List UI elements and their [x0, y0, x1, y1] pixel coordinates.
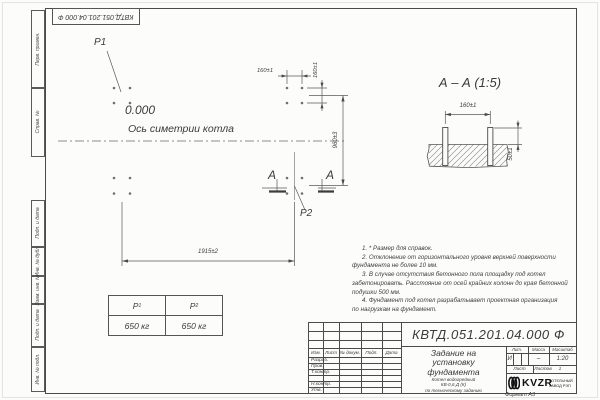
dim-1915: 1915±2 [198, 249, 218, 255]
load-label-p2: Р2 [300, 209, 312, 220]
tb-row-utv: Утв. [311, 388, 322, 393]
load-table-value-p1: 650 кг [108, 315, 166, 336]
tb-sheets-label: Листов [534, 367, 551, 372]
logo-caption-line2: ЗАВОД РЭП [549, 384, 571, 389]
section-dimension-lines [445, 111, 522, 152]
technical-notes: 1. * Размер для справок. 2. Отклонение о… [352, 245, 578, 315]
axis-of-symmetry-label: Ось симетрии котла [128, 124, 234, 135]
tb-title-line1: Задание на [431, 348, 476, 358]
tb-title-line2: установку [432, 357, 474, 367]
concrete-hatching [429, 145, 507, 167]
level-mark: 0.000 [125, 104, 155, 117]
section-dim-50: 50±1 [508, 147, 514, 160]
kvzr-logo-text: KVZR [522, 377, 553, 389]
section-dim-160: 160±1 [460, 103, 477, 109]
load-table: Р1 Р2 650 кг 650 кг [108, 295, 223, 335]
section-letter-left: А [268, 169, 276, 182]
tb-scale-value: 1:20 [557, 356, 569, 362]
tb-row-tkontr: Т.контр. [311, 370, 330, 375]
tb-mass-header: Масса [532, 347, 545, 352]
p2-subscript: 2 [195, 303, 198, 309]
section-view-title: А – А (1:5) [439, 76, 501, 90]
tb-mass-value: – [537, 356, 540, 362]
note-line: 1. * Размер для справок. [352, 245, 578, 254]
tb-lit-value: И [507, 356, 511, 362]
tb-scale-header: Масштаб [552, 347, 573, 352]
note-line: 3. В случае отсутствия бетонного пола пл… [352, 271, 578, 280]
tb-row-razrab: Разраб. [311, 358, 328, 363]
dim-160-top: 160±1 [257, 68, 273, 74]
note-line: забетонировать. Расстояние от осей крайн… [352, 280, 578, 289]
dim-960: 960±3 [333, 132, 339, 149]
tb-subtitle-line1: Котел водогрейный [432, 377, 476, 382]
tb-row-nkontr: Н.контр. [311, 382, 331, 387]
note-line: 4. Фундамент под котел разрабатывает про… [352, 297, 578, 306]
tb-header-podp: Подп. [365, 350, 377, 355]
load-table-header-p2: Р2 [165, 295, 223, 316]
section-anchor-bolts [443, 128, 493, 166]
note-line: фундамента не более 10 мм. [352, 262, 578, 271]
note-line: по нагрузкам на фундамент. [352, 306, 578, 315]
format-label: Формат А3 [505, 393, 535, 399]
dim-160-column: 160±1 [313, 62, 319, 78]
tb-sheet-label: Лист [513, 367, 525, 372]
tb-header-izm: Изм. [311, 350, 321, 355]
section-letter-right: А [326, 169, 334, 182]
tb-lit-header: Лит. [512, 347, 522, 352]
tb-header-list: Лист [325, 350, 337, 355]
kvzr-logo-icon [508, 376, 520, 390]
plan-dimension-lines [122, 70, 348, 266]
tb-header-dokum: № докум. [340, 350, 360, 355]
tb-subtitle-line2: КВ-0,6 Д (К) [441, 382, 466, 387]
title-block: КВТД.051.201.04.000 Ф Изм. Лист № докум.… [308, 322, 577, 394]
tb-title-line3: фундамента [427, 367, 479, 377]
load-table-header-p1: Р1 [108, 295, 166, 316]
tb-subtitle-line3: по техническому заданию [425, 388, 482, 393]
p1-subscript: 1 [138, 303, 141, 309]
tb-header-data: Дата [385, 350, 397, 355]
load-label-p1: Р1 [94, 38, 106, 49]
drawing-sheet: КВТД.051.201.04.000 Ф Перв. примен. Спра… [0, 0, 600, 400]
load-table-value-p2: 650 кг [165, 315, 223, 336]
title-block-designation: КВТД.051.201.04.000 Ф [412, 327, 565, 342]
note-line: подушки 500 мм. [352, 289, 578, 298]
note-line: 2. Отклонение от горизонтального уровня … [352, 254, 578, 263]
tb-sheets-value: 1 [559, 367, 562, 372]
tb-row-prov: Пров. [311, 364, 324, 369]
